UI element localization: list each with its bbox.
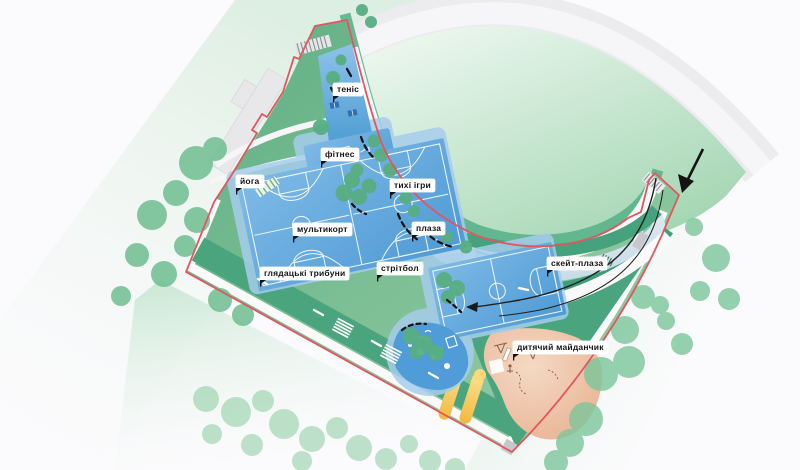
label-multicourt: мультикорт [293, 223, 352, 236]
label-fitness: фітнес [321, 148, 359, 161]
label-skate-plaza: скейт-плаза [547, 257, 607, 270]
label-spectator-stands: глядацькі трибуни [260, 267, 349, 280]
label-plaza: плаза [412, 222, 445, 235]
sandbox-icon [489, 359, 504, 374]
plan-canvas [0, 0, 800, 470]
label-yoga: йога [236, 175, 264, 188]
label-quiet-games: тихі ігри [390, 179, 435, 192]
label-playground: дитячий майданчик [513, 341, 608, 354]
label-streetball: стрітбол [377, 262, 423, 275]
site-plan: теніс фітнес йога тихі ігри мультикорт п… [0, 0, 800, 470]
label-tennis: теніс [333, 83, 363, 96]
